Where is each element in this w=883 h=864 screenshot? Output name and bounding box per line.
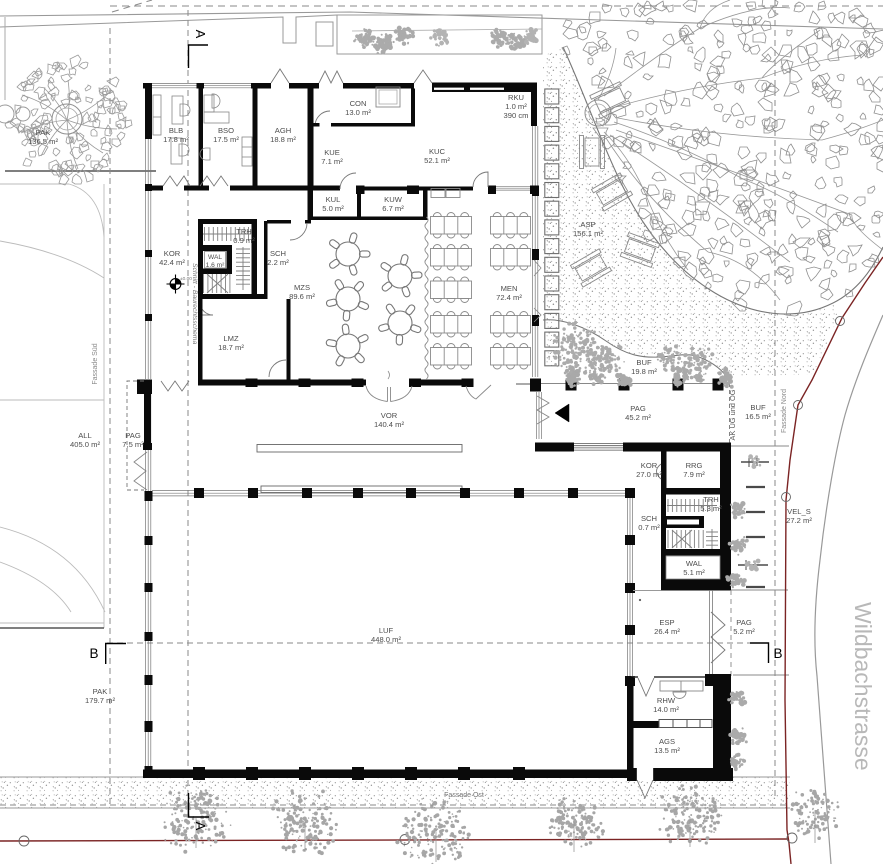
svg-text:ASP: ASP xyxy=(580,220,595,229)
svg-text:±0.00: ±0.00 xyxy=(180,276,192,282)
svg-text:13.0 m²: 13.0 m² xyxy=(345,108,371,117)
svg-text:PAK: PAK xyxy=(36,128,51,137)
svg-text:390 cm: 390 cm xyxy=(504,111,529,120)
svg-text:A: A xyxy=(193,822,208,831)
svg-text:45.2 m²: 45.2 m² xyxy=(625,413,651,422)
svg-text:PAG: PAG xyxy=(125,431,141,440)
svg-text:Wildbachstrasse: Wildbachstrasse xyxy=(850,602,876,771)
svg-text:SCH: SCH xyxy=(641,514,657,523)
svg-text:17.5 m²: 17.5 m² xyxy=(213,135,239,144)
svg-text:14.0 m²: 14.0 m² xyxy=(653,705,679,714)
svg-text:KOR: KOR xyxy=(164,249,181,258)
svg-text:AGH: AGH xyxy=(275,126,291,135)
svg-text:89.6 m²: 89.6 m² xyxy=(289,292,315,301)
svg-text:ESP: ESP xyxy=(659,618,674,627)
svg-text:26.4 m²: 26.4 m² xyxy=(654,627,680,636)
svg-text:PAK: PAK xyxy=(93,687,108,696)
svg-text:27.0 m²: 27.0 m² xyxy=(636,470,662,479)
svg-text:2.2 m²: 2.2 m² xyxy=(267,258,289,267)
svg-text:179.7 m²: 179.7 m² xyxy=(85,696,115,705)
svg-text:MZS: MZS xyxy=(294,283,310,292)
svg-text:TRH: TRH xyxy=(703,495,719,504)
svg-text:BLB: BLB xyxy=(169,126,183,135)
svg-text:448.0 m²: 448.0 m² xyxy=(371,635,401,644)
svg-text:CON: CON xyxy=(350,99,367,108)
svg-text:0.9 m²: 0.9 m² xyxy=(233,236,255,245)
svg-text:Schnitt - Baurechtsschema: Schnitt - Baurechtsschema xyxy=(191,263,198,344)
svg-text:RRG: RRG xyxy=(686,461,703,470)
svg-text:KUL: KUL xyxy=(326,195,341,204)
svg-text:KUE: KUE xyxy=(324,148,340,157)
svg-text:1.0 m²: 1.0 m² xyxy=(505,102,527,111)
svg-text:7,5 m²: 7,5 m² xyxy=(122,440,144,449)
svg-text:0.7 m²: 0.7 m² xyxy=(638,523,660,532)
svg-text:ALL: ALL xyxy=(78,431,92,440)
svg-text:140.4 m²: 140.4 m² xyxy=(374,420,404,429)
svg-text:BUF: BUF xyxy=(636,358,652,367)
svg-text:5.1 m²: 5.1 m² xyxy=(683,568,705,577)
svg-text:RHW: RHW xyxy=(657,696,676,705)
svg-text:13.5 m²: 13.5 m² xyxy=(654,746,680,755)
svg-text:AGS: AGS xyxy=(659,737,675,746)
svg-text:AK UG und OG: AK UG und OG xyxy=(728,389,737,440)
svg-text:156.1 m²: 156.1 m² xyxy=(573,229,603,238)
svg-text:KUW: KUW xyxy=(384,195,403,204)
svg-text:6.7 m²: 6.7 m² xyxy=(382,204,404,213)
svg-text:VEL_S: VEL_S xyxy=(787,507,811,516)
svg-text:27.2 m²: 27.2 m² xyxy=(786,516,812,525)
svg-text:136.5 m²: 136.5 m² xyxy=(28,137,58,146)
svg-text:5.0 m²: 5.0 m² xyxy=(322,204,344,213)
svg-text:7.1 m²: 7.1 m² xyxy=(321,157,343,166)
svg-text:BSO: BSO xyxy=(218,126,234,135)
svg-text:16.5 m²: 16.5 m² xyxy=(745,412,771,421)
svg-text:SCH: SCH xyxy=(270,249,286,258)
svg-text:72.4 m²: 72.4 m² xyxy=(496,293,522,302)
svg-text:WAL: WAL xyxy=(686,559,702,568)
svg-text:LMZ: LMZ xyxy=(223,334,239,343)
svg-text:18.7 m²: 18.7 m² xyxy=(218,343,244,352)
svg-text:LUF: LUF xyxy=(379,626,394,635)
svg-text:KOR: KOR xyxy=(641,461,658,470)
svg-text:KUC: KUC xyxy=(429,147,446,156)
svg-text:A: A xyxy=(193,30,208,39)
svg-text:5.2 m²: 5.2 m² xyxy=(733,627,755,636)
svg-text:42.4 m²: 42.4 m² xyxy=(159,258,185,267)
svg-text:B: B xyxy=(89,646,98,661)
svg-text:PAG: PAG xyxy=(630,404,646,413)
svg-text:5.3 m²: 5.3 m² xyxy=(700,504,722,513)
svg-text:405.0 m²: 405.0 m² xyxy=(70,440,100,449)
svg-text:BUF: BUF xyxy=(750,403,766,412)
svg-text:1.6 m²: 1.6 m² xyxy=(206,262,225,269)
svg-text:Fassade Ost: Fassade Ost xyxy=(444,792,484,799)
svg-text:Fassade Süd: Fassade Süd xyxy=(92,343,99,384)
svg-text:MEN: MEN xyxy=(501,284,518,293)
svg-text:52.1 m²: 52.1 m² xyxy=(424,156,450,165)
svg-text:WAL: WAL xyxy=(208,254,222,261)
svg-text:17.8 m²: 17.8 m² xyxy=(163,135,189,144)
svg-text:RKU: RKU xyxy=(508,93,524,102)
svg-text:VOR: VOR xyxy=(381,411,398,420)
svg-text:PAG: PAG xyxy=(736,618,752,627)
svg-text:B: B xyxy=(773,646,782,661)
svg-text:Fassade Nord: Fassade Nord xyxy=(781,389,788,433)
svg-text:TRH: TRH xyxy=(236,227,252,236)
svg-text:19.8 m²: 19.8 m² xyxy=(631,367,657,376)
svg-text:18.8 m²: 18.8 m² xyxy=(270,135,296,144)
svg-text:7.9 m²: 7.9 m² xyxy=(683,470,705,479)
